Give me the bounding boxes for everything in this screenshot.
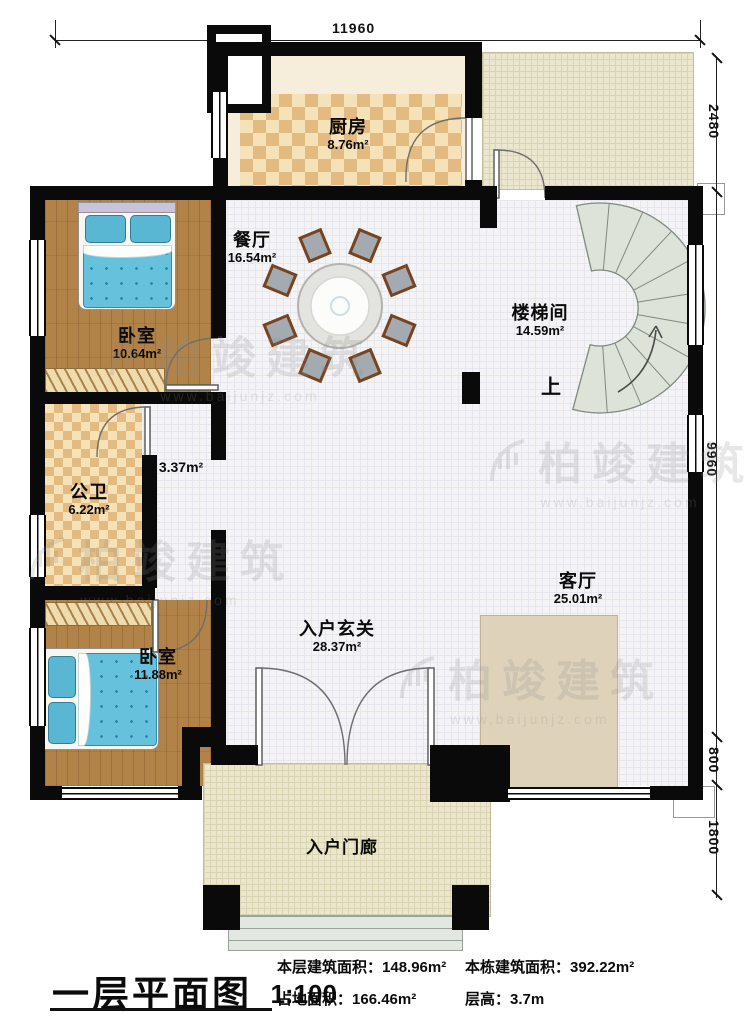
pillow [130, 215, 171, 243]
dimension-tick [711, 889, 722, 900]
window [29, 628, 46, 726]
area-stats-col2: 本栋建筑面积：392.22m² 层高：3.7m [465, 956, 634, 1009]
wall-segment [480, 200, 497, 228]
room-label-bathroom: 公卫6.22m² [68, 482, 109, 518]
title-underline [50, 1008, 272, 1011]
stair-up-label: 上 [541, 371, 561, 400]
room-label-dining: 餐厅16.54m² [228, 230, 276, 266]
wall-segment [45, 586, 155, 600]
window [29, 515, 46, 577]
wall-segment [465, 180, 482, 186]
dimension-top-width: 11960 [332, 20, 375, 36]
pillow [48, 702, 76, 744]
wall-segment [650, 786, 703, 800]
dimension-right-3: 800 [706, 747, 722, 773]
wall-segment [213, 56, 228, 92]
wall-segment [45, 392, 226, 404]
wardrobe [45, 368, 165, 394]
area-stats-col1: 本层建筑面积：148.96m² 占地面积：166.46m² [277, 956, 446, 1009]
bed-headboard [78, 202, 176, 213]
wall-segment [688, 345, 703, 415]
dimension-tick [711, 731, 722, 742]
wall-segment [30, 186, 482, 200]
porch-pillar [452, 885, 489, 930]
floor-plan: 厨房8.76m² 餐厅16.54m² 卧室10.64m² 楼梯间14.59m² … [0, 0, 750, 1018]
window [687, 245, 704, 345]
wall-segment [211, 392, 226, 460]
wall-segment [211, 745, 258, 765]
wall-segment [30, 786, 62, 800]
wall-segment [482, 186, 497, 200]
wall-segment [30, 577, 45, 628]
wall-segment [688, 472, 703, 790]
pillow [48, 656, 76, 698]
wall-segment [211, 530, 226, 600]
wall-segment [462, 372, 480, 404]
bed [78, 202, 176, 310]
porch-pillar [203, 885, 240, 930]
window [687, 415, 704, 472]
wall-segment [465, 56, 482, 118]
entry-steps [228, 915, 463, 951]
wall-segment [430, 745, 510, 802]
room-label-bedroom1: 卧室10.64m² [113, 326, 161, 362]
wall-segment [545, 186, 703, 200]
wardrobe [45, 602, 152, 626]
room-label-kitchen: 厨房8.76m² [327, 117, 368, 153]
dimension-right-4: 1800 [706, 820, 722, 855]
dimension-right-1: 2480 [706, 104, 722, 139]
room-label-foyer: 入户玄关28.37m² [299, 619, 375, 655]
wall-segment [30, 336, 45, 515]
window [29, 240, 46, 336]
wall-segment [142, 455, 157, 588]
extension-line [55, 20, 56, 48]
terrace-floor [482, 52, 694, 190]
room-label-bedroom2: 卧室11.88m² [134, 647, 182, 683]
window [211, 92, 228, 158]
wall-segment [211, 600, 226, 745]
dimension-right-2: 9960 [704, 442, 720, 477]
wall-segment [182, 727, 226, 747]
wall-segment [178, 786, 202, 800]
wall-segment [213, 158, 228, 186]
extension-line [700, 20, 701, 48]
wall-segment [211, 200, 226, 338]
room-label-living: 客厅25.01m² [554, 571, 602, 607]
pillow [85, 215, 126, 243]
window [62, 787, 178, 800]
room-label-porch: 入户门廊 [306, 838, 378, 858]
dimension-line-top [55, 40, 700, 41]
dimension-tick [711, 52, 722, 63]
window [508, 787, 650, 800]
room-label-stairwell: 楼梯间14.59m² [512, 303, 569, 339]
wall-segment [688, 200, 703, 245]
wall-segment [213, 42, 482, 56]
corridor-area-label: 3.37m² [159, 459, 203, 475]
wall-segment [30, 200, 45, 240]
